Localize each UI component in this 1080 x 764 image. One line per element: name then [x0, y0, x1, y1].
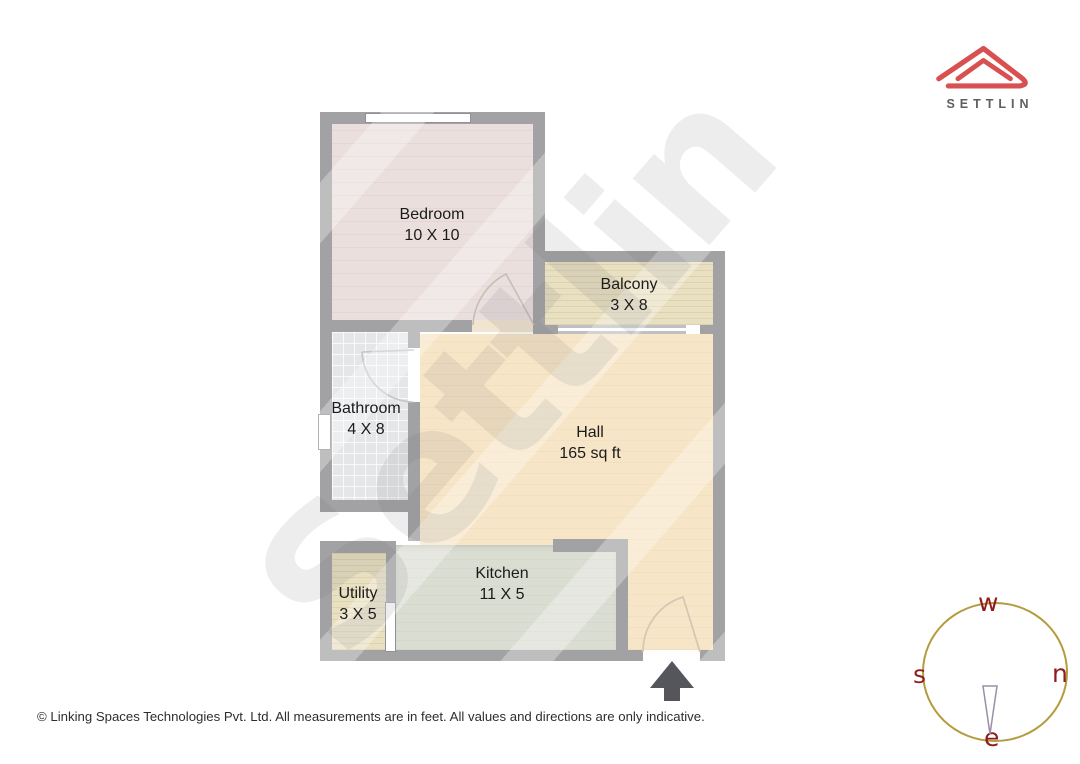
entrance-door-opening	[643, 650, 700, 661]
utility-name: Utility	[338, 583, 377, 604]
bathroom-bottom-wall	[320, 500, 420, 512]
bedroom-label: Bedroom 10 X 10	[400, 204, 465, 246]
bathroom-door-opening	[408, 348, 420, 402]
bathroom-label: Bathroom 4 X 8	[331, 398, 400, 440]
balcony-top-wall	[533, 251, 725, 262]
balcony-bottom-wall-left	[533, 325, 558, 334]
balcony-bottom-wall-right	[700, 325, 713, 334]
compass-west: w	[978, 588, 998, 617]
utility-label: Utility 3 X 5	[338, 583, 377, 625]
balcony-dimensions: 3 X 8	[601, 295, 658, 316]
hall-name: Hall	[559, 422, 620, 443]
bottom-outer-wall-right	[700, 650, 723, 661]
hall-dimensions: 165 sq ft	[559, 443, 620, 464]
left-outer-wall-lower	[320, 541, 332, 661]
bedroom-dimensions: 10 X 10	[400, 225, 465, 246]
kitchen-label: Kitchen 11 X 5	[475, 563, 528, 605]
bathroom-window	[318, 414, 331, 450]
right-outer-wall	[713, 251, 725, 661]
bathroom-dimensions: 4 X 8	[331, 419, 400, 440]
utility-window	[385, 602, 396, 652]
bedroom-door-threshold	[472, 320, 533, 332]
settlin-logo-icon	[934, 36, 1036, 96]
compass-south: s	[913, 660, 926, 689]
bathroom-name: Bathroom	[331, 398, 400, 419]
utility-dimensions: 3 X 5	[338, 604, 377, 625]
bottom-outer-wall-left	[320, 650, 643, 661]
balcony-label: Balcony 3 X 8	[601, 274, 658, 316]
left-outer-wall-upper	[320, 112, 332, 512]
brand-name: SETTLIN	[925, 97, 1055, 111]
copyright-note: © Linking Spaces Technologies Pvt. Ltd. …	[37, 709, 705, 724]
kitchen-right-wall	[616, 539, 628, 661]
bedroom-window	[365, 113, 471, 123]
compass-north: n	[1052, 659, 1068, 688]
bedroom-bottom-wall	[320, 320, 472, 332]
balcony-sliding-window	[558, 325, 686, 334]
kitchen-name: Kitchen	[475, 563, 528, 584]
hall-label: Hall 165 sq ft	[559, 422, 620, 464]
compass-needle-icon	[980, 684, 1000, 738]
kitchen-dimensions: 11 X 5	[475, 584, 528, 605]
bedroom-right-wall	[533, 112, 545, 334]
entrance-arrow-icon	[649, 661, 695, 701]
balcony-door-opening	[686, 325, 700, 334]
balcony-name: Balcony	[601, 274, 658, 295]
bedroom-name: Bedroom	[400, 204, 465, 225]
floorplan-page: SETTLIN Settlin Bedroom 10 X 10 Balc	[0, 0, 1080, 764]
